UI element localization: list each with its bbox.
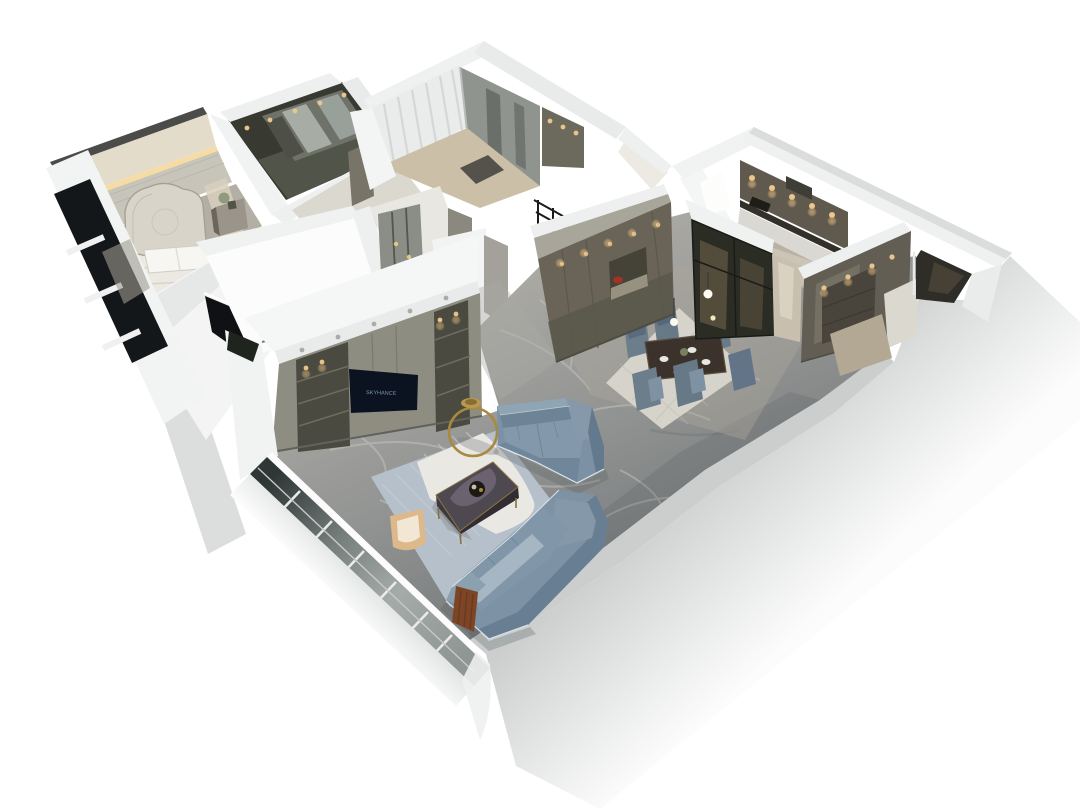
svg-text:SKYHANCE: SKYHANCE — [366, 390, 397, 397]
